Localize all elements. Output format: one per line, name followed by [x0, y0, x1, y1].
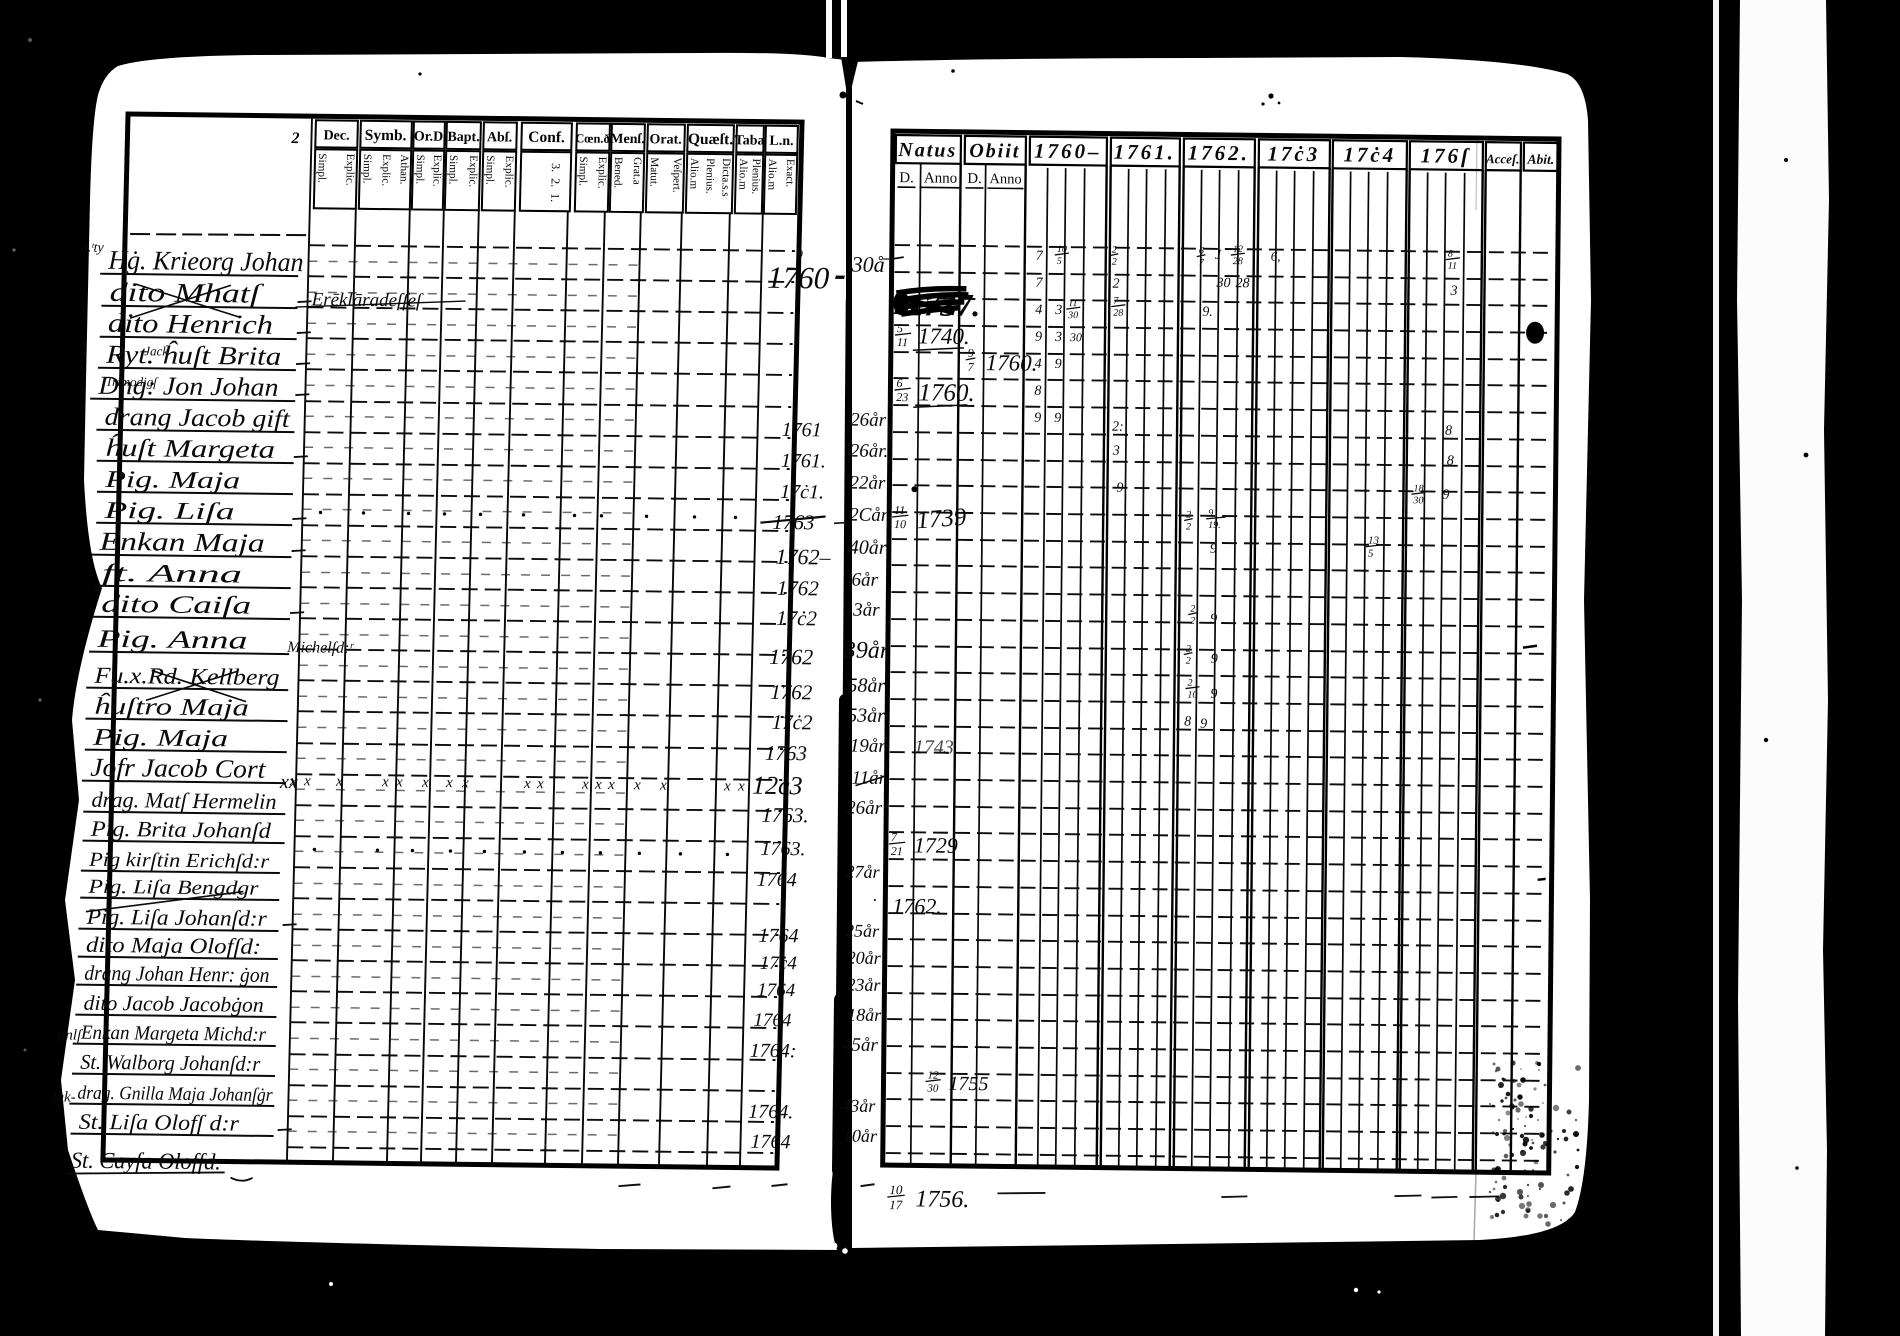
svg-text:Cœn.ð: Cœn.ð	[575, 131, 610, 145]
svg-text:6: 6	[896, 376, 902, 390]
svg-text:ft. Anna: ft. Anna	[102, 560, 243, 589]
svg-text:1739: 1739	[915, 504, 967, 535]
svg-text:9: 9	[1054, 411, 1061, 426]
svg-text:1762: 1762	[777, 576, 820, 601]
svg-text:3: 3	[1449, 284, 1457, 299]
svg-text:1756.: 1756.	[915, 1186, 969, 1213]
svg-text:· ·: · ·	[872, 890, 886, 910]
svg-text:ġnlſ: ġnlſ	[58, 1027, 84, 1043]
svg-text:30: 30	[1069, 330, 1082, 344]
svg-text:10år: 10år	[843, 1126, 878, 1146]
svg-text:3: 3	[1054, 303, 1062, 318]
svg-text:22år: 22år	[849, 473, 886, 494]
svg-text:Menſ.: Menſ.	[610, 132, 645, 147]
svg-text:Orat.: Orat.	[649, 132, 682, 147]
svg-text:9: 9	[797, 247, 803, 261]
svg-text:26år: 26år	[850, 410, 887, 431]
svg-text:1763: 1763	[772, 510, 815, 534]
svg-text:4: 4	[1035, 357, 1042, 372]
svg-text:2Cår: 2Cår	[849, 505, 889, 526]
svg-text:drag. Gnilla Maja Johanſġr: drag. Gnilla Maja Johanſġr	[77, 1083, 273, 1106]
svg-text:Abſ.: Abſ.	[487, 130, 513, 145]
svg-text:x: x	[607, 777, 615, 793]
svg-text:D.: D.	[967, 171, 982, 187]
svg-text:1764: 1764	[753, 1010, 792, 1031]
svg-text:8: 8	[1184, 715, 1191, 730]
svg-text:17ċ2: 17ċ2	[771, 710, 813, 734]
svg-text:9: 9	[1442, 488, 1449, 503]
svg-text:1764: 1764	[758, 925, 799, 947]
svg-text:Explic.: Explic.	[379, 154, 392, 186]
svg-text:1760⁃: 1760⁃	[767, 260, 846, 296]
svg-text:dito Mhatſ: dito Mhatſ	[109, 277, 264, 309]
svg-text:19år: 19år	[850, 736, 887, 757]
svg-text:Alio.m: Alio.m	[736, 158, 749, 190]
svg-text:x: x	[421, 775, 429, 791]
svg-text:2: 2	[1186, 522, 1191, 533]
svg-text:Enkan Margeta Michd:r: Enkan Margeta Michd:r	[80, 1022, 267, 1046]
svg-text:Simpl.: Simpl.	[360, 154, 373, 184]
svg-text:drag. Matſ Hermelin: drag. Matſ Hermelin	[91, 787, 277, 814]
svg-text:ĥuſt Margeta: ĥuſt Margeta	[105, 433, 276, 464]
svg-text:8: 8	[1448, 249, 1453, 260]
svg-text:26år: 26år	[846, 798, 883, 819]
svg-text:Simpl.: Simpl.	[446, 155, 459, 185]
svg-text:45år: 45år	[842, 1034, 879, 1055]
svg-text:1762: 1762	[770, 680, 813, 705]
svg-text:9: 9	[1035, 330, 1042, 345]
svg-text:1761: 1761	[781, 419, 822, 441]
svg-text:Enkan Maja: Enkan Maja	[98, 527, 265, 558]
svg-text:17ċ1.: 17ċ1.	[780, 481, 824, 504]
svg-text:1755: 1755	[948, 1073, 988, 1095]
svg-text:Plenius.: Plenius.	[703, 158, 716, 194]
svg-text:1763.: 1763.	[760, 838, 806, 861]
svg-text:Pig. Maja: Pig. Maja	[104, 467, 241, 495]
svg-text:J: J	[1215, 248, 1222, 263]
svg-text:10: 10	[1187, 690, 1197, 701]
svg-text:x: x	[737, 778, 745, 794]
svg-text:x: x	[723, 778, 731, 794]
svg-text:Michelſd:ʳ: Michelſd:ʳ	[286, 639, 355, 657]
svg-text:Fu.x.Rd. Kellberg: Fu.x.Rd. Kellberg	[93, 663, 280, 690]
svg-text:Explic.: Explic.	[430, 155, 443, 187]
svg-text:17ċ4: 17ċ4	[1343, 142, 1396, 167]
svg-text:6år: 6år	[851, 570, 878, 591]
svg-text:dito Caiſa: dito Caiſa	[101, 591, 252, 620]
svg-text:26år.: 26år.	[850, 441, 889, 462]
svg-text:17ċ4: 17ċ4	[760, 953, 798, 974]
svg-text:Explic.: Explic.	[595, 157, 608, 189]
svg-text:28: 28	[1113, 308, 1123, 319]
svg-text:Dec.: Dec.	[323, 128, 349, 143]
svg-text:1764: 1764	[757, 980, 796, 1001]
svg-text:g.ᵗty: g.ᵗty	[81, 240, 105, 255]
svg-text:1761.: 1761.	[1114, 140, 1177, 165]
svg-text:x: x	[523, 776, 531, 792]
svg-text:2: 2	[1187, 678, 1192, 689]
svg-text:4: 4	[1035, 303, 1042, 318]
svg-text:x: x	[335, 774, 343, 790]
svg-text:x: x	[461, 775, 469, 791]
svg-text:43år: 43år	[841, 1095, 876, 1115]
svg-text:8: 8	[1447, 454, 1454, 469]
svg-text:3: 3	[1054, 330, 1062, 345]
svg-text:2: 2	[1112, 277, 1119, 292]
svg-text:Bened.: Bened.	[611, 157, 624, 189]
svg-text:12ċ3: 12ċ3	[752, 771, 803, 801]
svg-text:2: 2	[1190, 616, 1195, 627]
svg-text:28: 28	[1235, 276, 1249, 291]
svg-text:Erēklāradeſſeſ: Erēklāradeſſeſ	[310, 289, 424, 311]
svg-text:Simpl.: Simpl.	[576, 156, 589, 186]
svg-text:Taba: Taba	[734, 133, 764, 148]
svg-text:28: 28	[1233, 256, 1243, 267]
svg-text:Exact.: Exact.	[783, 159, 796, 188]
svg-text:9.: 9.	[1202, 305, 1213, 320]
svg-text:Abit.: Abit.	[1526, 152, 1554, 167]
svg-text:1743: 1743	[914, 736, 954, 758]
svg-text:Alio.m: Alio.m	[765, 159, 778, 191]
svg-text:10: 10	[894, 517, 906, 531]
svg-text:Obiit: Obiit	[969, 140, 1020, 163]
svg-text:Explic.: Explic.	[343, 154, 356, 186]
svg-text:x: x	[395, 774, 403, 790]
svg-text:1761.: 1761.	[781, 450, 827, 473]
svg-text:18år: 18år	[847, 1005, 882, 1025]
svg-text:1762: 1762	[769, 644, 814, 670]
svg-text:1764:: 1764:	[749, 1040, 796, 1063]
svg-text:Pig. Liſa Bengdgr: Pig. Liſa Bengdgr	[87, 876, 259, 900]
svg-text:9: 9	[1055, 357, 1062, 372]
svg-text:1764: 1764	[757, 869, 798, 891]
svg-text:5: 5	[1368, 548, 1374, 560]
svg-text:Conf.: Conf.	[528, 129, 565, 146]
svg-text:Ryt. ĥuſt Brita: Ryt. ĥuſt Brita	[105, 340, 282, 371]
svg-text:9: 9	[1208, 508, 1213, 519]
svg-text:2: 2	[290, 130, 299, 147]
svg-text:30: 30	[1215, 276, 1230, 291]
svg-text:Hġ. Krieorg Johan: Hġ. Krieorg Johan	[107, 245, 304, 277]
svg-text:Pig kirſtin Erichſd:r: Pig kirſtin Erichſd:r	[88, 849, 270, 873]
svg-text:10: 10	[889, 1182, 903, 1197]
svg-text:11: 11	[1448, 261, 1457, 272]
svg-text:40år: 40år	[849, 537, 887, 559]
svg-text:1764: 1764	[750, 1131, 791, 1153]
svg-text:St. Liſa Olofſ d:r: St. Liſa Olofſ d:r	[79, 1109, 240, 1136]
svg-text:3år: 3år	[852, 600, 880, 621]
svg-text:9: 9	[1034, 411, 1041, 426]
svg-text:11: 11	[897, 335, 908, 349]
svg-text:Pig. Liſa: Pig. Liſa	[103, 498, 235, 526]
svg-text:9: 9	[1200, 717, 1207, 732]
svg-text:2: 2	[1112, 257, 1117, 268]
svg-text:Pig. Brita Johanſd: Pig. Brita Johanſd	[89, 816, 272, 843]
svg-text:Simpl.: Simpl.	[483, 155, 496, 185]
svg-text:x: x	[381, 774, 389, 790]
svg-text:7: 7	[1036, 249, 1044, 264]
svg-text:x: x	[536, 776, 544, 792]
svg-text:Quæſt.: Quæſt.	[688, 131, 734, 149]
svg-text:D.: D.	[899, 170, 914, 186]
svg-text:6,: 6,	[1271, 249, 1281, 264]
svg-text:19.: 19.	[1208, 520, 1221, 531]
svg-text:Pig. Anna: Pig. Anna	[96, 626, 248, 655]
svg-text:9: 9	[1210, 612, 1217, 627]
svg-text:1740.: 1740.	[918, 323, 970, 349]
svg-text:Pig. Maja: Pig. Maja	[91, 725, 228, 753]
svg-text:1762.: 1762.	[892, 893, 942, 919]
svg-text:17ċ3: 17ċ3	[1267, 141, 1320, 166]
svg-text:Anno: Anno	[989, 171, 1021, 187]
svg-text:30: 30	[1412, 495, 1423, 506]
svg-text:ĥuſtro Maja: ĥuſtro Maja	[93, 693, 249, 722]
svg-text:tnk-: tnk-	[52, 1089, 76, 1105]
svg-text:1763: 1763	[765, 741, 808, 765]
svg-text:53år: 53år	[847, 705, 885, 727]
svg-text:St. Cayſa Olofſd.: St. Cayſa Olofſd.	[71, 1148, 222, 1175]
svg-text:Symb.: Symb.	[364, 127, 406, 144]
svg-text:Simpl.: Simpl.	[413, 154, 426, 184]
svg-text:25år: 25år	[845, 921, 880, 941]
svg-text:drang Johan Henr: ġon: drang Johan Henr: ġon	[84, 961, 270, 987]
svg-text:17: 17	[889, 1197, 903, 1212]
svg-text:1762.: 1762.	[1188, 141, 1251, 166]
svg-text:dito Henrich: dito Henrich	[108, 308, 274, 340]
svg-text:Athan.: Athan.	[397, 154, 410, 184]
svg-text:Simpl.: Simpl.	[315, 153, 328, 183]
svg-text:dito Jacob Jacobġon: dito Jacob Jacobġon	[83, 991, 264, 1017]
svg-text:Trimodigſ: Trimodigſ	[105, 374, 159, 390]
svg-text:9: 9	[1210, 542, 1217, 557]
svg-text:Acceſ.: Acceſ.	[1485, 151, 1520, 166]
svg-text:Or.D: Or.D	[414, 129, 444, 144]
svg-text:17ċ2: 17ċ2	[776, 606, 818, 630]
svg-text:Explic.: Explic.	[466, 155, 479, 187]
svg-text:20år: 20år	[847, 948, 882, 968]
svg-text:Bapt.: Bapt.	[447, 130, 480, 145]
svg-text:Natus: Natus	[897, 139, 957, 162]
svg-text:30: 30	[1067, 310, 1078, 321]
svg-text:27år: 27år	[846, 862, 881, 882]
svg-text:2: 2	[1186, 656, 1191, 667]
svg-text:1762–: 1762–	[775, 544, 832, 570]
svg-text:x: x	[633, 777, 641, 793]
svg-text:Jofr Jacob Cort: Jofr Jacob Cort	[90, 753, 267, 784]
svg-text:23år: 23år	[846, 975, 881, 995]
svg-text:x: x	[581, 777, 589, 793]
svg-text:x: x	[445, 775, 453, 791]
svg-text:dito Maja Olofſd:: dito Maja Olofſd:	[86, 932, 262, 959]
svg-text:x: x	[594, 777, 602, 793]
svg-text:1729: 1729	[914, 832, 958, 858]
svg-text:1760–: 1760–	[1034, 139, 1102, 164]
svg-text:Explic.: Explic.	[502, 156, 515, 188]
svg-text:Plenius.: Plenius.	[749, 158, 762, 194]
svg-text:11: 11	[894, 503, 905, 517]
svg-text:176ſ: 176ſ	[1420, 143, 1471, 168]
svg-text:5: 5	[897, 321, 903, 335]
svg-text:Jack: Jack	[144, 343, 168, 358]
svg-text:9: 9	[1211, 652, 1218, 667]
svg-text:23: 23	[896, 390, 908, 404]
svg-text:1764.: 1764.	[748, 1101, 794, 1124]
svg-text:Dicta.s.s: Dicta.s.s	[719, 158, 732, 197]
svg-text:58år: 58år	[847, 675, 885, 697]
svg-text:Grat.a: Grat.a	[630, 157, 643, 185]
svg-text:8: 8	[1034, 384, 1041, 399]
svg-text:5: 5	[1057, 256, 1062, 267]
svg-text:1760.: 1760.	[986, 350, 1038, 376]
svg-text:1763.: 1763.	[761, 803, 809, 828]
svg-text:St. Walborg Johanſd:r: St. Walborg Johanſd:r	[80, 1050, 261, 1076]
svg-text:Veſpert.: Veſpert.	[670, 158, 683, 193]
svg-text:3. 2. 1.: 3. 2. 1.	[548, 163, 563, 202]
svg-text:1760.: 1760.	[918, 379, 975, 407]
svg-text:21: 21	[891, 844, 903, 858]
svg-text:drang Jacob gift: drang Jacob gift	[104, 404, 291, 433]
svg-text:9: 9	[1210, 687, 1217, 702]
svg-text:39år: 39år	[843, 637, 890, 664]
svg-text:xx: xx	[279, 771, 298, 793]
svg-text:x: x	[303, 773, 311, 789]
svg-text:L.n.: L.n.	[769, 134, 793, 149]
svg-text:x: x	[659, 778, 667, 794]
svg-text:7: 7	[1035, 276, 1043, 291]
svg-text:8: 8	[1445, 424, 1452, 439]
svg-text:9: 9	[1116, 481, 1123, 496]
svg-text:Alio.m: Alio.m	[687, 158, 700, 190]
svg-text:Matut.: Matut.	[647, 157, 660, 187]
svg-text:30: 30	[926, 1083, 939, 1095]
svg-text:2:: 2:	[1112, 420, 1124, 435]
svg-text:3: 3	[1112, 444, 1120, 459]
svg-text:Anno: Anno	[924, 170, 958, 186]
